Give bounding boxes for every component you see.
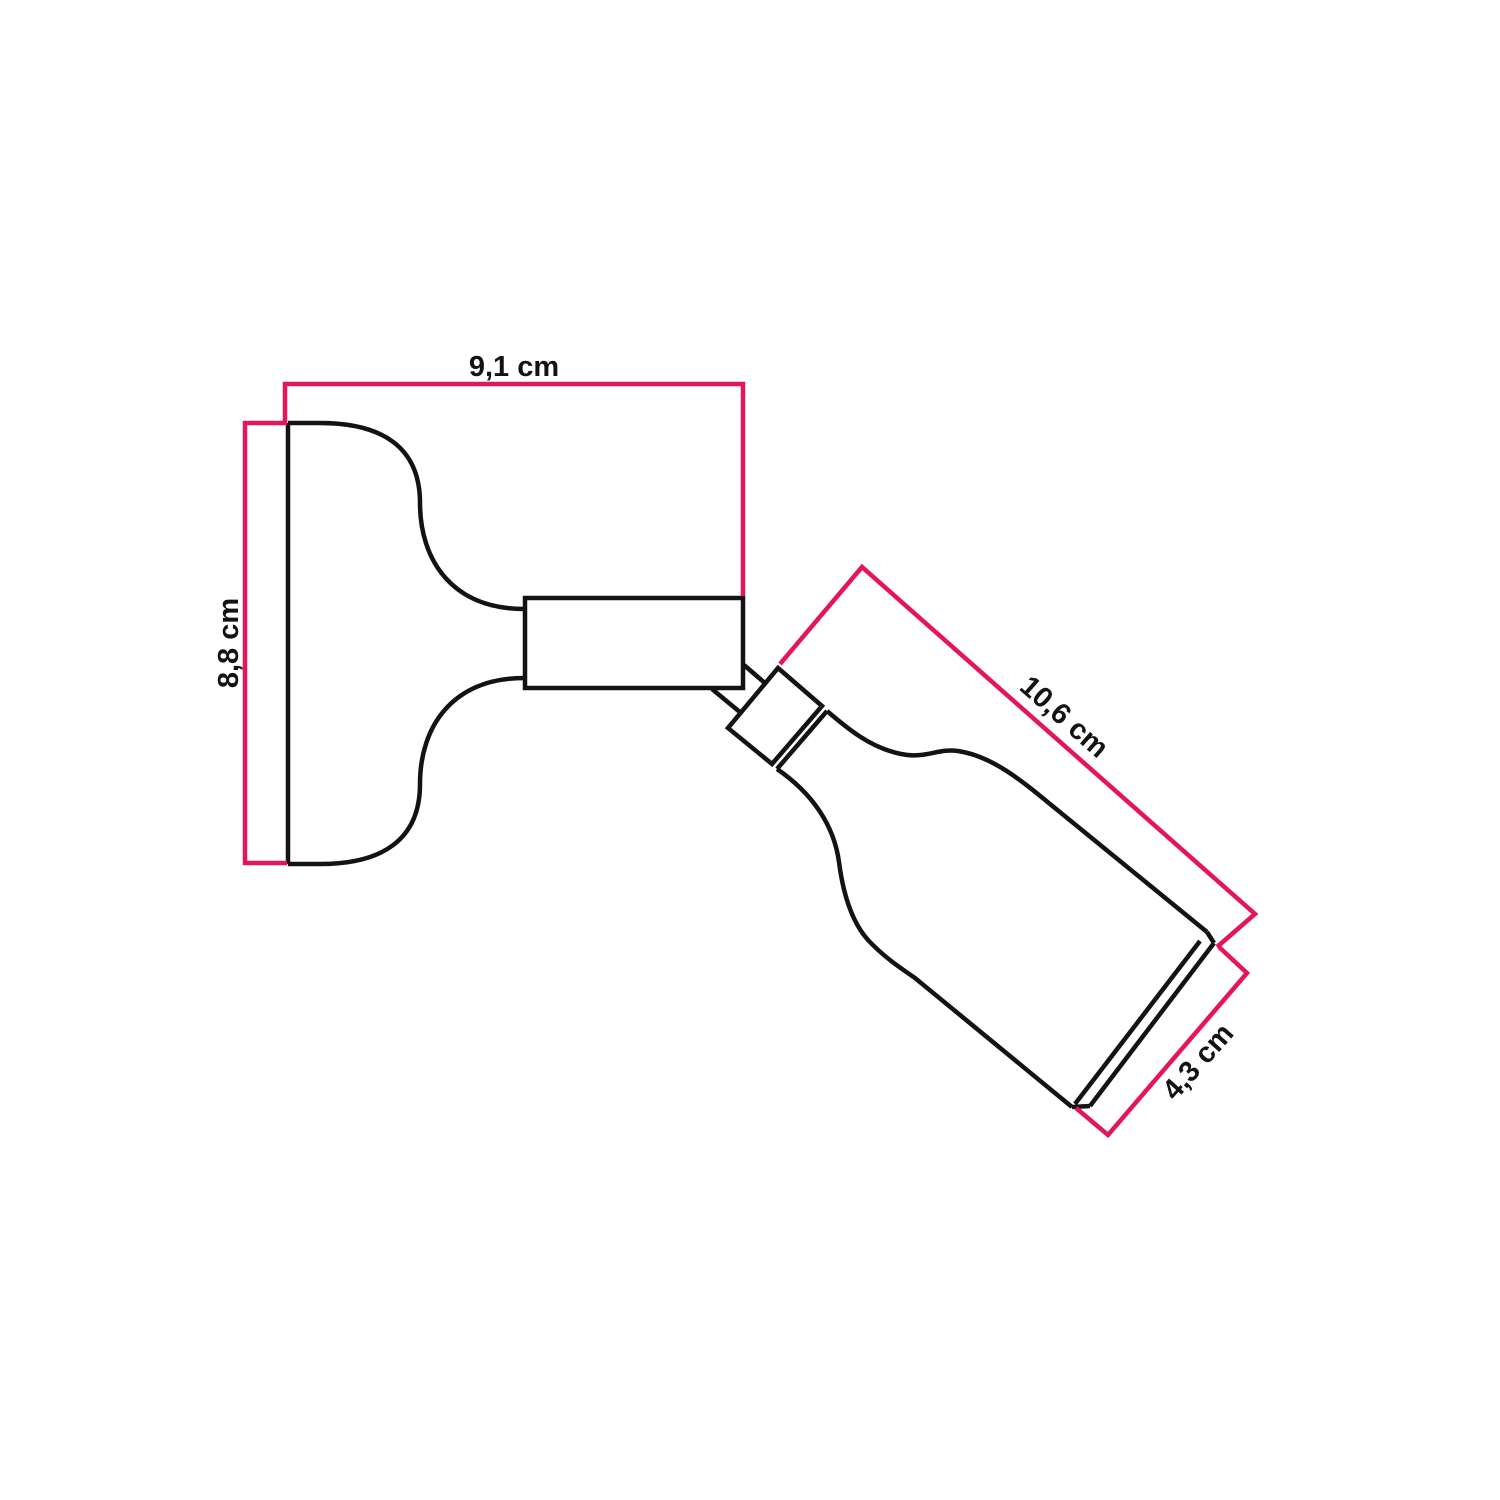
- dimension-label-base-width: 9,1 cm: [469, 351, 559, 383]
- dimension-label-spot-length: 10,6 cm: [1014, 670, 1115, 764]
- lamp-outline: [288, 423, 1214, 1107]
- mount-box: [525, 598, 743, 688]
- dimension-label-base-height: 8,8 cm: [213, 598, 245, 688]
- swivel-joint-rim-line: [777, 711, 827, 769]
- spotlight-front-bevel-top: [1207, 932, 1214, 943]
- wall-cup-top-contour: [288, 423, 527, 609]
- hinge-pin-lower-line: [712, 689, 741, 713]
- spotlight-front-bevel-bottom: [1072, 1106, 1090, 1107]
- dimension-line-base-width: [285, 384, 743, 596]
- wall-cup-outline: [288, 423, 527, 864]
- dimension-diagram: 9,1 cm 8,8 cm 10,6 cm 4,3 cm: [0, 0, 1500, 1500]
- dimension-line-spot-length: [780, 567, 1255, 947]
- spotlight-lower-contour: [777, 769, 1072, 1107]
- spotlight-body: [777, 711, 1214, 1107]
- diagram-canvas: 9,1 cm 8,8 cm 10,6 cm 4,3 cm: [0, 0, 1500, 1500]
- wall-cup-bottom-contour: [288, 678, 527, 864]
- dimension-lines: [245, 384, 1255, 1135]
- hinge-pin-upper-line: [744, 665, 766, 684]
- dimension-line-base-height: [245, 423, 287, 863]
